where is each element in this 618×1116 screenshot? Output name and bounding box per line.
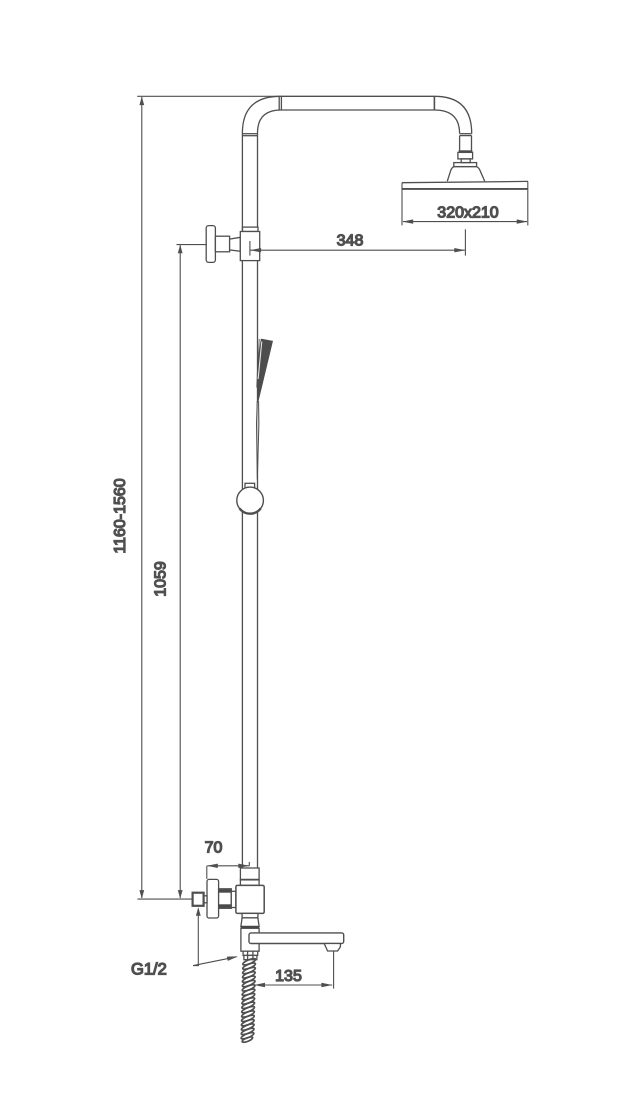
svg-text:135: 135 bbox=[275, 968, 302, 985]
svg-text:348: 348 bbox=[337, 232, 364, 249]
svg-text:320x210: 320x210 bbox=[437, 205, 498, 222]
svg-text:1059: 1059 bbox=[153, 561, 170, 597]
svg-text:1160-1560: 1160-1560 bbox=[112, 478, 129, 553]
svg-text:70: 70 bbox=[205, 840, 223, 857]
svg-text:G1/2: G1/2 bbox=[131, 961, 167, 979]
